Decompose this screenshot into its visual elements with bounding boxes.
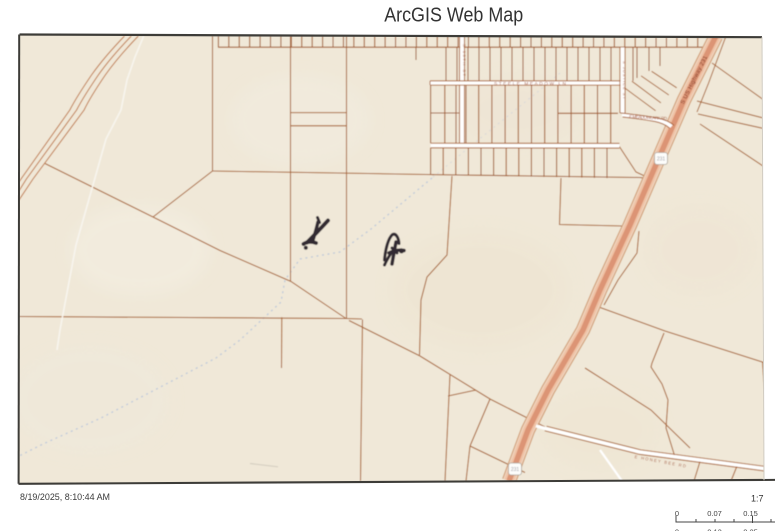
svg-text:0.25: 0.25 <box>743 528 758 531</box>
svg-text:ArcGIS Web Map: ArcGIS Web Map <box>384 5 523 27</box>
svg-text:231: 231 <box>511 467 520 473</box>
svg-text:0: 0 <box>675 528 679 531</box>
svg-text:1:7: 1:7 <box>751 494 764 504</box>
svg-text:0.13: 0.13 <box>707 528 722 531</box>
svg-text:231: 231 <box>657 157 666 163</box>
svg-text:0: 0 <box>675 509 679 518</box>
svg-text:0.07: 0.07 <box>707 509 722 518</box>
svg-text:0.15: 0.15 <box>743 509 758 518</box>
svg-text:STEELE MEADOW LN: STEELE MEADOW LN <box>494 81 567 87</box>
svg-text:S 15TH ST: S 15TH ST <box>462 44 467 77</box>
svg-text:S JUSTICE ST: S JUSTICE ST <box>622 61 627 100</box>
svg-text:8/19/2025, 8:10:44 AM: 8/19/2025, 8:10:44 AM <box>20 492 110 503</box>
